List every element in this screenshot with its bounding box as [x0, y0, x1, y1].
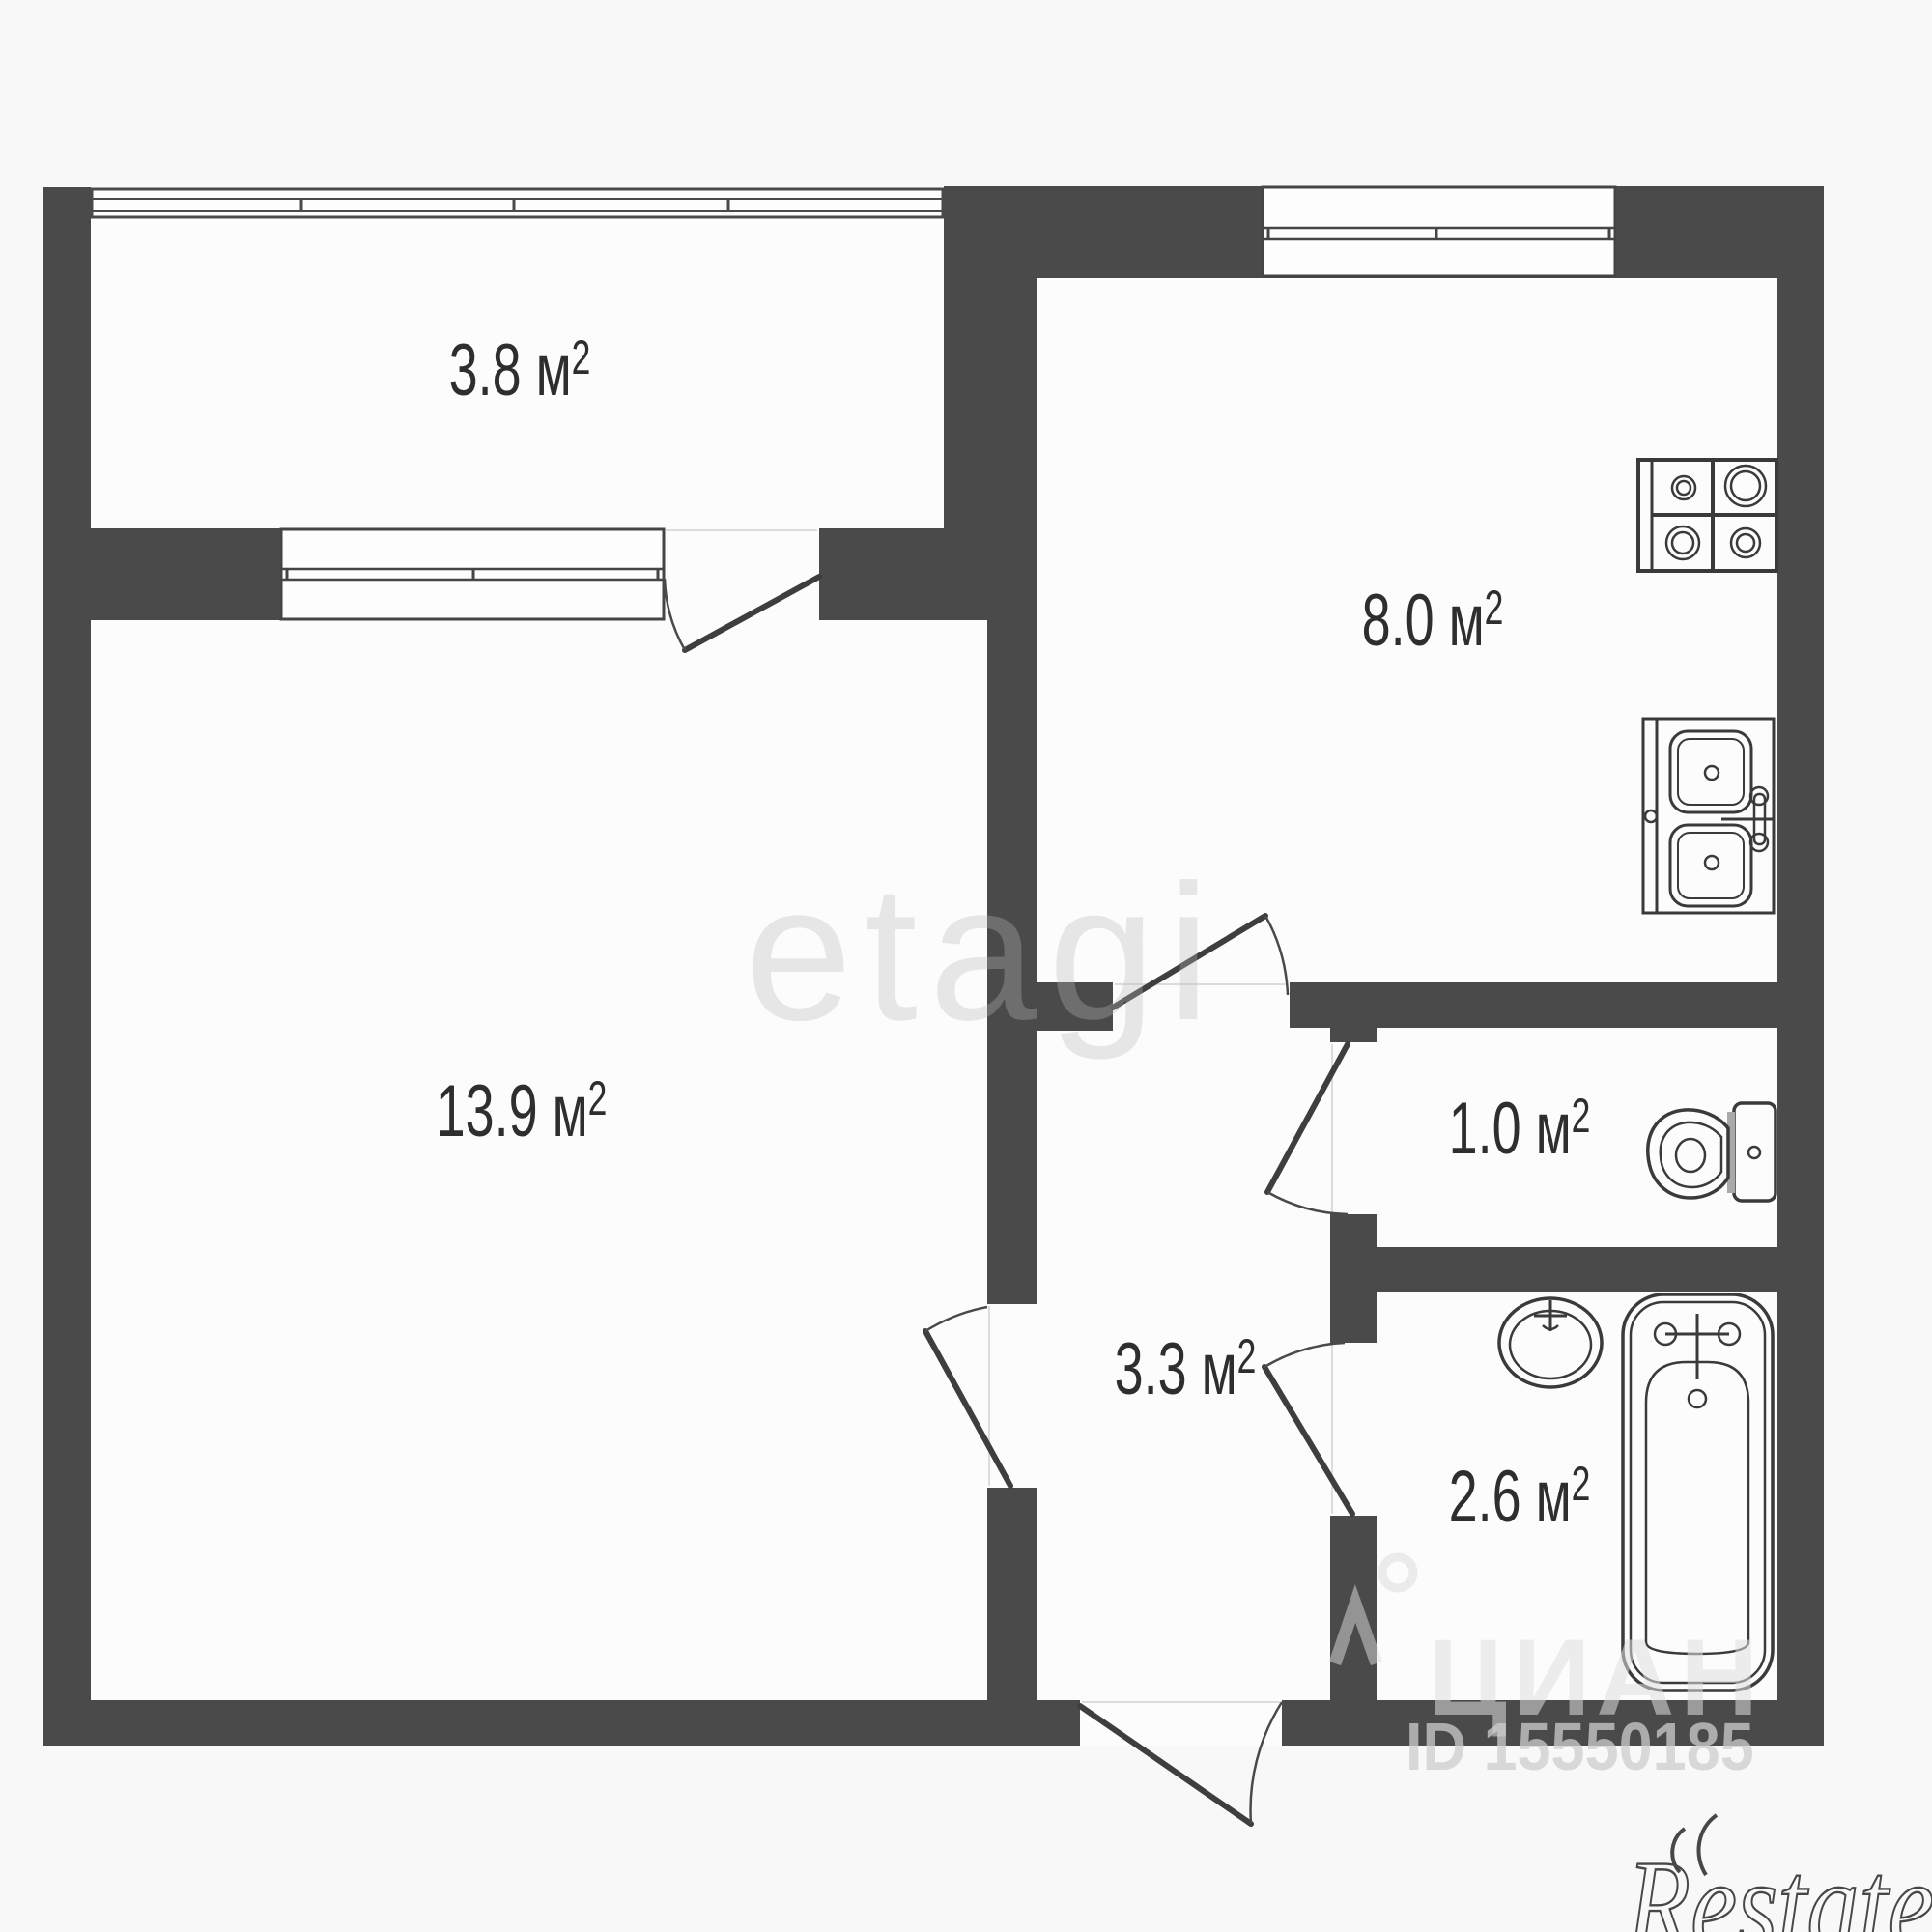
svg-text:1.0 м2: 1.0 м2: [1449, 1087, 1591, 1169]
svg-text:ID 15550185: ID 15550185: [1406, 1710, 1754, 1785]
svg-text:Restate: Restate: [1626, 1834, 1932, 1932]
svg-text:8.0 м2: 8.0 м2: [1362, 579, 1504, 661]
svg-text:2.6 м2: 2.6 м2: [1449, 1455, 1591, 1537]
svg-text:13.9 м2: 13.9 м2: [437, 1069, 608, 1151]
svg-text:3.3 м2: 3.3 м2: [1115, 1327, 1257, 1409]
svg-text:etagi: etagi: [745, 845, 1222, 1061]
svg-text:3.8 м2: 3.8 м2: [449, 328, 591, 411]
